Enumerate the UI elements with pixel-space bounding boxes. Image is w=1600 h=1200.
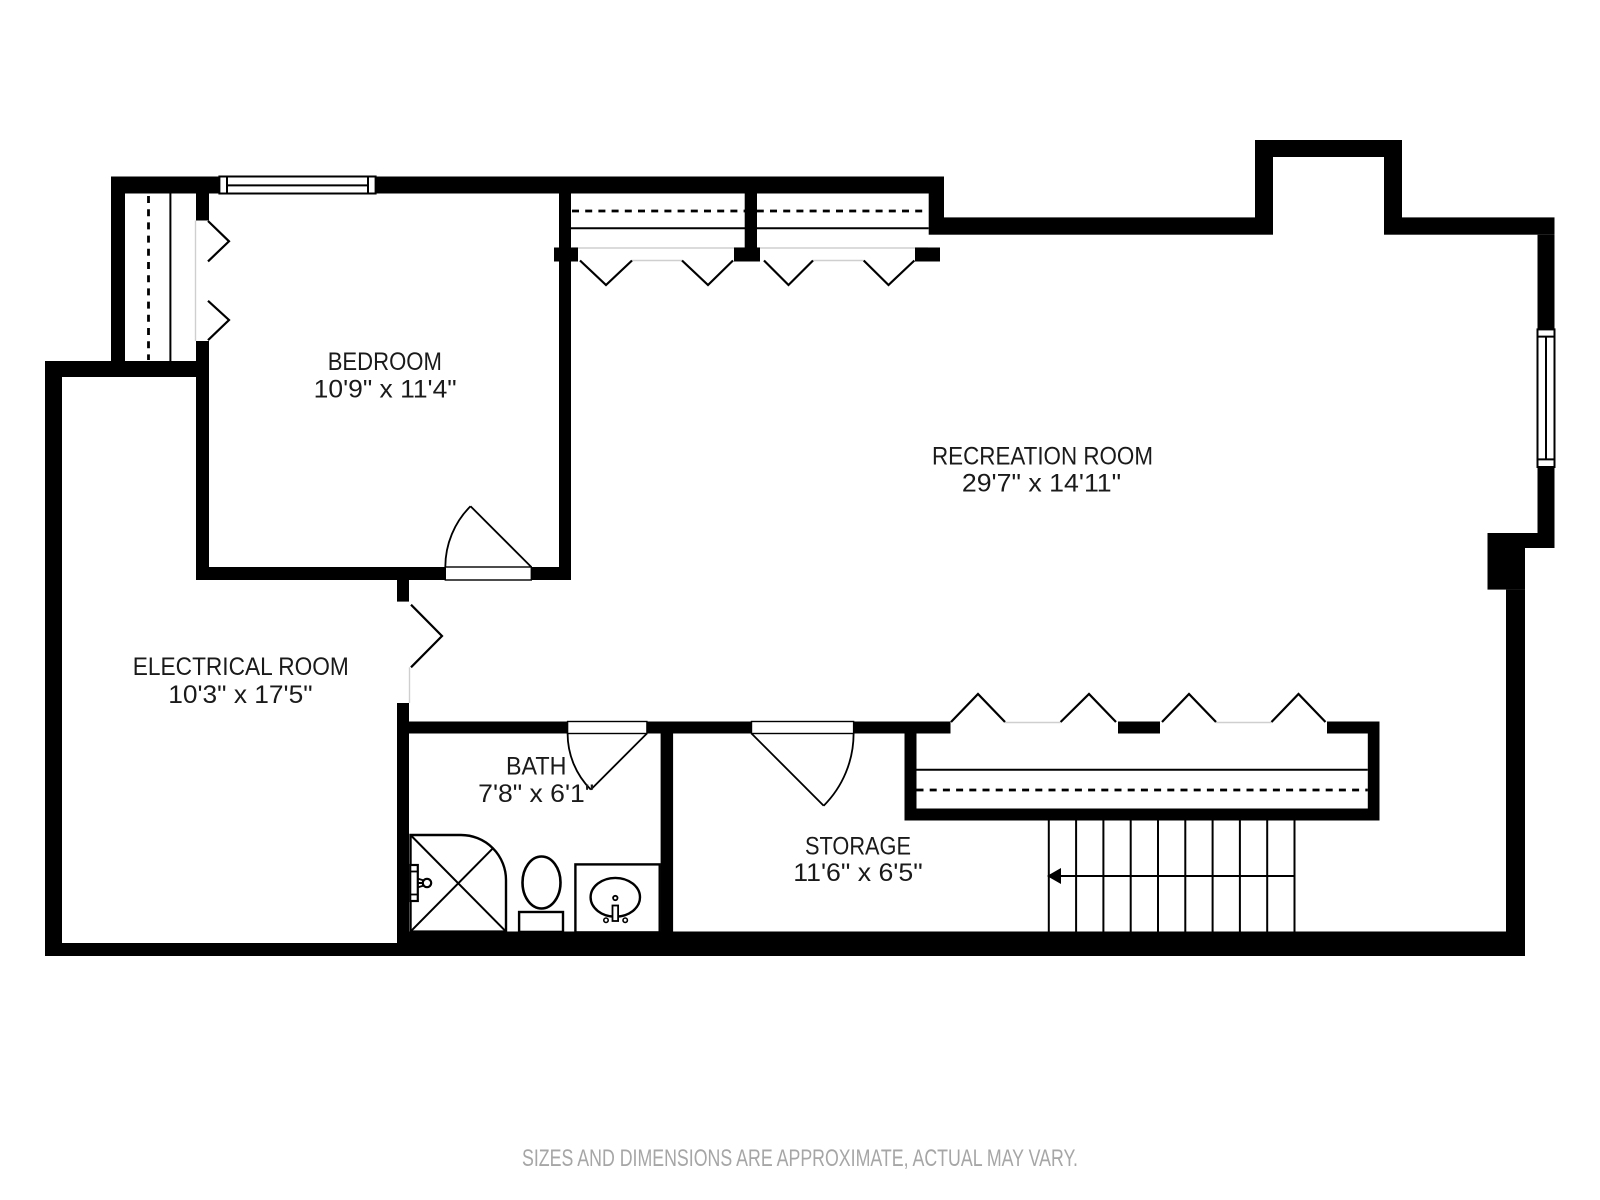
svg-text:BEDROOM: BEDROOM <box>328 349 442 376</box>
svg-text:10'3" x 17'5": 10'3" x 17'5" <box>168 682 312 709</box>
svg-text:10'9" x 11'4": 10'9" x 11'4" <box>314 376 457 403</box>
svg-text:29'7" x 14'11": 29'7" x 14'11" <box>962 471 1121 498</box>
svg-text:ELECTRICAL ROOM: ELECTRICAL ROOM <box>133 654 349 681</box>
svg-text:SIZES AND DIMENSIONS ARE APPRO: SIZES AND DIMENSIONS ARE APPROXIMATE, AC… <box>522 1145 1078 1172</box>
svg-text:BATH: BATH <box>506 754 566 781</box>
svg-text:11'6" x 6'5": 11'6" x 6'5" <box>793 860 922 887</box>
svg-text:STORAGE: STORAGE <box>805 833 911 860</box>
svg-text:7'8" x 6'1": 7'8" x 6'1" <box>478 781 594 808</box>
svg-text:RECREATION ROOM: RECREATION ROOM <box>932 444 1153 471</box>
